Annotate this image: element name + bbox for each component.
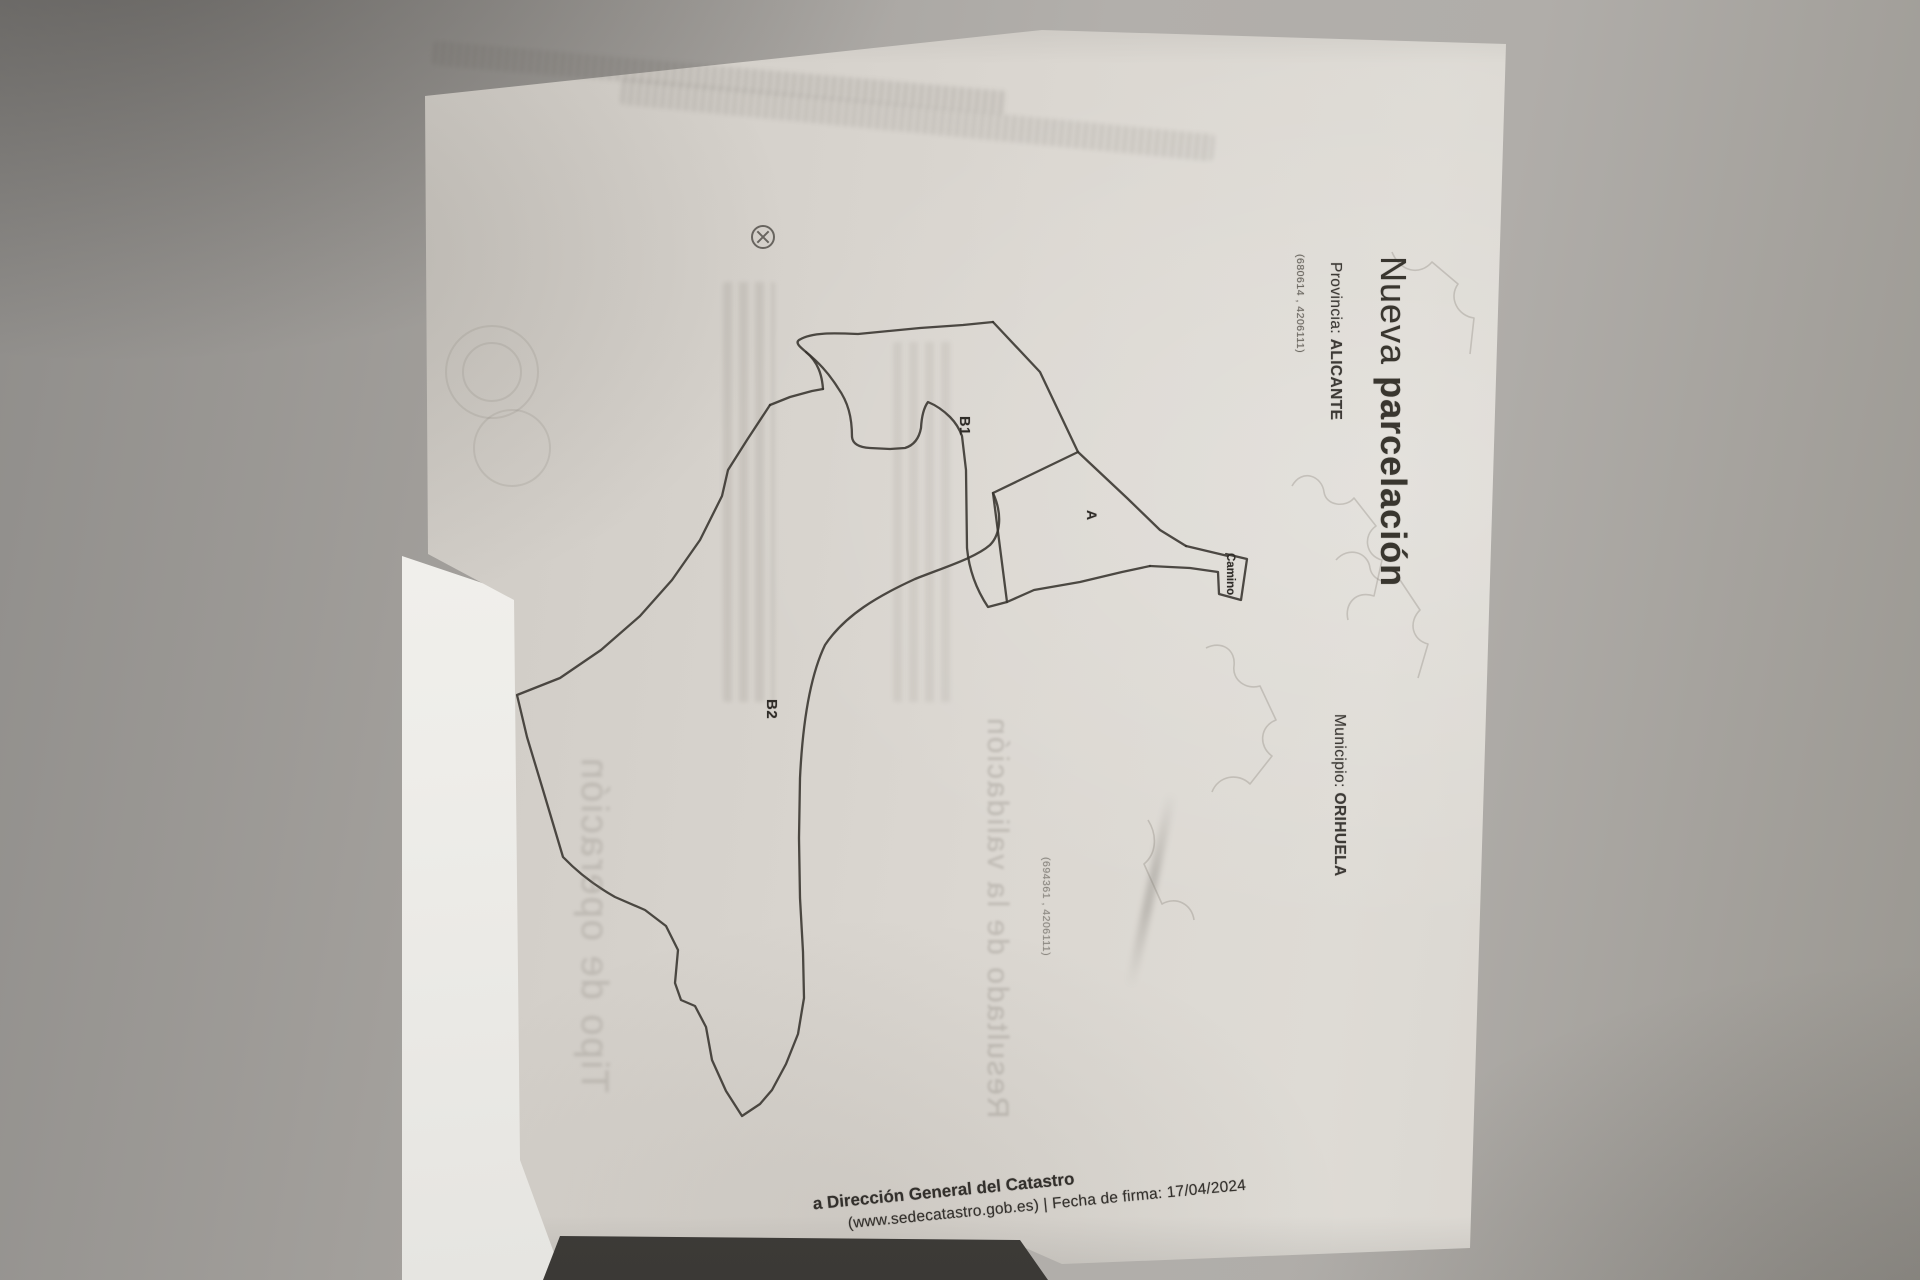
municipality-line: Municipio: ORIHUELA (1330, 714, 1348, 877)
map-coordinate-top-left: (680614 , 4206111) (1294, 254, 1306, 353)
map-coordinate-bottom-right: (694361 , 4206111) (1040, 857, 1052, 956)
parcel-inner-ridge (770, 389, 823, 405)
road-label-camino: Camino (1224, 553, 1236, 595)
circle-x-icon (751, 225, 775, 249)
province-label: Provincia: (1327, 262, 1344, 339)
photo-of-document: Nueva parcelación Provincia: ALICANTE (6… (0, 0, 1920, 1280)
page-title: Nueva parcelación (1372, 256, 1414, 587)
ghost-heading-right: Resultado de la validación (980, 716, 1014, 1118)
page-title-regular: Nueva (1373, 256, 1414, 376)
province-line: Provincia: ALICANTE (1326, 262, 1344, 420)
parcel-label-b1: B1 (956, 416, 972, 436)
parcel-b1-divider (806, 352, 1007, 607)
parcel-label-a: A (1084, 510, 1100, 521)
ghost-heading-left: Tipo de operación (572, 756, 615, 1093)
municipality-label: Municipio: (1331, 714, 1348, 793)
municipality-value: ORIHUELA (1331, 793, 1348, 877)
parcel-a-outline (993, 452, 1150, 602)
province-value: ALICANTE (1327, 339, 1344, 421)
parcel-map (0, 0, 1920, 1280)
parcel-label-b2: B2 (763, 699, 780, 719)
parcel-b1-top-edge (798, 322, 993, 389)
page-title-bold: parcelación (1373, 376, 1414, 587)
